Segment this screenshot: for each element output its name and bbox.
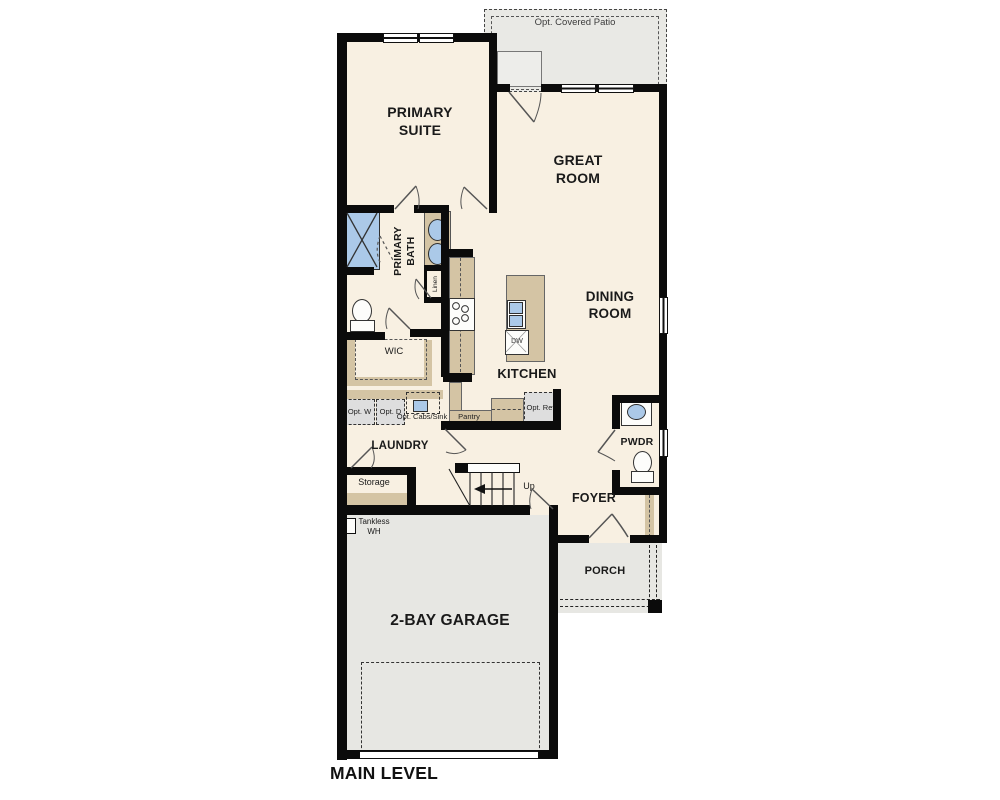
pwdr-label: PWDR: [614, 436, 660, 449]
island-sink-basin: [509, 302, 523, 314]
wall: [441, 421, 561, 430]
window: [561, 84, 596, 93]
floor-plan: Opt. W Opt. D Opt. Ref DW: [0, 0, 1000, 800]
wall: [338, 467, 414, 475]
wall: [489, 33, 497, 213]
wall: [443, 373, 472, 382]
pwdr-sink-basin: [627, 404, 646, 420]
island-sink-basin: [509, 315, 523, 327]
linen-label-text: Linen: [432, 276, 440, 292]
wall: [337, 205, 394, 213]
pwdr-toilet-tank: [631, 471, 654, 483]
stair-wall-stub: [455, 463, 468, 472]
opt-laundry-sink: [413, 400, 428, 412]
wall: [341, 267, 374, 275]
window: [659, 429, 668, 457]
wall: [630, 535, 667, 543]
primary-bath-label-text: PRIMARY BATH: [392, 220, 418, 282]
porch-dashed-edge: [560, 606, 660, 607]
dishwasher-label: DW: [511, 338, 523, 347]
window: [598, 84, 634, 93]
bath-toilet-tank: [350, 320, 375, 332]
opt-cabs-sink-label: Opt. Cabs/Sink: [396, 412, 448, 421]
counter-dashed-line: [492, 409, 521, 410]
wall: [553, 389, 561, 425]
garage-door-opening: [360, 751, 538, 759]
opt-washer: Opt. W: [344, 399, 375, 425]
patio-label: Opt. Covered Patio: [495, 17, 655, 29]
wall: [445, 249, 473, 257]
plan-title: MAIN LEVEL: [330, 763, 490, 785]
wall: [337, 33, 347, 760]
porch-dashed-edge: [649, 545, 650, 607]
porch-label: PORCH: [570, 565, 640, 579]
garage-label: 2-BAY GARAGE: [385, 611, 515, 630]
window: [659, 297, 668, 334]
wall: [338, 505, 530, 515]
foyer-label: FOYER: [562, 491, 626, 507]
porch-dashed-edge: [560, 599, 660, 600]
opt-ref-label: Opt. Ref: [527, 404, 555, 413]
stairs-up-label: Up: [517, 481, 541, 492]
kitchen-label: KITCHEN: [491, 366, 563, 382]
wall: [612, 395, 620, 429]
linen-label: Linen: [425, 270, 447, 298]
wall: [410, 329, 441, 337]
range: [449, 298, 475, 331]
garage-door-outline: [361, 662, 540, 753]
tankless-wh-label: Tankless WH: [351, 517, 397, 537]
primary-suite-label: PRIMARY SUITE: [382, 104, 458, 139]
wic-label: WIC: [374, 346, 414, 358]
laundry-label: LAUNDRY: [366, 439, 434, 453]
dishwasher: DW: [505, 330, 529, 355]
dining-room-label: DINING ROOM: [572, 289, 648, 323]
porch-post: [648, 600, 662, 613]
wall: [497, 84, 510, 92]
patio-pad: [497, 51, 542, 87]
great-room-label: GREAT ROOM: [540, 152, 616, 187]
wall: [341, 332, 385, 340]
opt-washer-label: Opt. W: [348, 408, 371, 417]
storage-label: Storage: [350, 477, 398, 488]
wall: [549, 535, 589, 543]
foyer-opt-wall-dash: [649, 495, 650, 537]
window: [419, 33, 454, 43]
porch-dashed-edge: [656, 545, 657, 607]
pantry-label: Pantry: [447, 412, 491, 421]
window: [383, 33, 418, 43]
